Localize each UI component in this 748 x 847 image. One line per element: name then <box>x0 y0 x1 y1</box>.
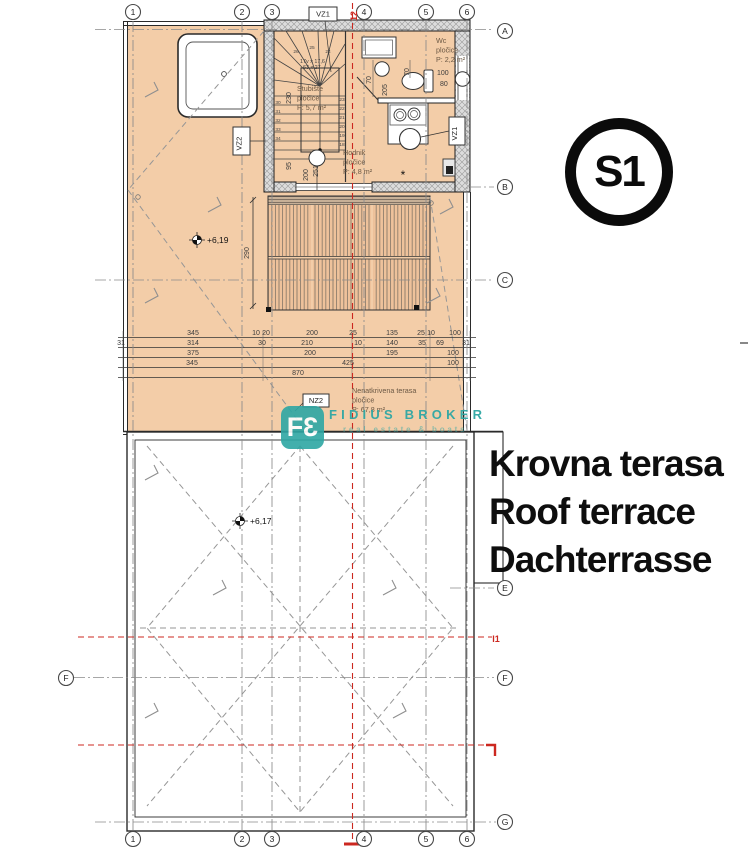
stair-step: 26 <box>293 49 299 55</box>
label: F <box>63 673 68 683</box>
dimension-label: 80 <box>440 81 448 88</box>
logo-letter-3: 3 <box>303 412 318 443</box>
section-badge: S1 <box>565 118 673 226</box>
floor-plan-page: { "drawing": { "badge": "S1", "title": {… <box>0 0 748 847</box>
dimension-label: 140 <box>386 340 398 347</box>
dimension-label: 135 <box>386 330 398 337</box>
stair-step: 32 <box>275 118 281 124</box>
title-en: Roof terrace <box>489 488 723 536</box>
toilet-tank <box>424 70 433 92</box>
grid-marker: A <box>498 24 513 39</box>
deck-post <box>414 305 419 310</box>
label: 5 <box>424 7 429 17</box>
dimension-label: 10 <box>427 330 435 337</box>
dimension-label: 200 <box>306 330 318 337</box>
room-name: Stubište <box>297 84 323 93</box>
deck-post <box>266 307 271 312</box>
room-material: pločice <box>297 94 319 103</box>
tag-label: VZ1 <box>316 10 330 19</box>
label: B <box>502 182 508 192</box>
label: 5 <box>424 834 429 844</box>
dimension-label: 345 <box>187 330 199 337</box>
stair-step: 30 <box>275 100 281 106</box>
broker-name: FIDIUS BROKER <box>329 407 486 422</box>
dimension-label: 35 <box>418 340 426 347</box>
grid-marker: 3 <box>265 5 280 20</box>
dimension-label: 25 <box>349 330 357 337</box>
dimension-label: 314 <box>187 340 199 347</box>
label: F <box>502 673 507 683</box>
title-hr: Krovna terasa <box>489 440 723 488</box>
dimension-label: 70 <box>404 68 411 76</box>
dimension-label: 195 <box>386 350 398 357</box>
tag-vz1: VZ1 <box>309 7 337 21</box>
dimension-label: 100 <box>447 360 459 367</box>
fixture-circle <box>375 62 389 76</box>
label: E <box>502 583 508 593</box>
dimension-label: 345 <box>186 360 198 367</box>
dimension-label: 100 <box>447 350 459 357</box>
label: C <box>502 275 508 285</box>
broker-tagline: real estate & boats <box>343 425 467 434</box>
boiler <box>400 129 421 150</box>
dimension-label: 425 <box>342 360 354 367</box>
tag-vz2: VZ2 <box>233 127 250 155</box>
stair-step: 23 <box>339 97 345 103</box>
stair-step: 20 <box>339 124 345 130</box>
logo-letter-f: F <box>287 412 304 443</box>
stair-step: 34 <box>275 136 281 142</box>
grid-marker: 6 <box>460 832 475 847</box>
grid-marker: F <box>59 671 74 686</box>
label: 4 <box>362 834 367 844</box>
tag-label: VZ1 <box>450 127 459 141</box>
tag-vz1: VZ1 <box>449 117 465 145</box>
room-area: P: 4,8 m² <box>343 167 373 176</box>
section-label: I1 <box>492 634 500 644</box>
dimension-label: 200 <box>303 169 310 181</box>
room-name: Hodnik <box>343 148 366 157</box>
pergola-deck <box>266 196 430 312</box>
grid-marker: 1 <box>126 5 141 20</box>
dimension-label: 69 <box>436 340 444 347</box>
level-value: +6,19 <box>207 235 229 245</box>
dimension-label: 25 <box>417 330 425 337</box>
room-name: Wc <box>436 36 447 45</box>
label: 6 <box>465 7 470 17</box>
label: 2 <box>240 7 245 17</box>
label: 3 <box>270 834 275 844</box>
grid-marker: B <box>498 180 513 195</box>
label: 3 <box>270 7 275 17</box>
drain-symbol <box>309 150 325 166</box>
label: A <box>502 26 508 36</box>
dimension-label: 95 <box>286 162 293 170</box>
section-label: 12 <box>349 11 359 21</box>
dimension-label: 10 <box>354 340 362 347</box>
tag-label: VZ2 <box>235 137 244 151</box>
room-material: pločice <box>343 158 365 167</box>
label: G <box>502 817 509 827</box>
room-name: Nenatkrivena terasa <box>352 386 416 395</box>
stair-step: 25 <box>309 45 315 51</box>
dimension-label: 70 <box>366 76 373 84</box>
dimension-label: 31 <box>117 340 125 347</box>
dimension-label: 205 <box>382 84 389 96</box>
dimension-label: 100 <box>449 330 461 337</box>
tag-label: NZ2 <box>309 396 323 405</box>
stair-step: 33 <box>275 127 281 133</box>
grid-marker: 5 <box>419 5 434 20</box>
stair-note: 63 x 27 <box>303 65 321 71</box>
label: 1 <box>131 834 136 844</box>
dimension-label: 30 <box>258 340 266 347</box>
stair-step: 18 <box>339 142 345 148</box>
dimension-label: 200 <box>304 350 316 357</box>
room-material: pločice <box>352 396 374 405</box>
room-area: P: 2,2 m² <box>436 55 466 64</box>
grid-marker: 2 <box>235 832 250 847</box>
dimension-label: 31 <box>462 340 470 347</box>
label: 4 <box>362 7 367 17</box>
broker-logo: F3 <box>281 406 324 449</box>
round-window-symbol <box>455 72 469 86</box>
stair-step: 19 <box>339 133 345 139</box>
grid-marker: 3 <box>265 832 280 847</box>
stair-step: 31 <box>275 109 281 115</box>
dimension-label: 870 <box>292 370 304 377</box>
room-area: P: 5,7 m² <box>297 103 327 112</box>
dimension-label: 20 <box>262 330 270 337</box>
room-material: pločice <box>436 46 458 55</box>
title-block: Krovna terasa Roof terrace Dachterrasse <box>489 440 723 584</box>
stair-step: 21 <box>339 115 345 121</box>
grid-marker: C <box>498 273 513 288</box>
dimension-label: 10 <box>252 330 260 337</box>
label: 1 <box>131 7 136 17</box>
dimension-label: 100 <box>437 70 449 77</box>
dimension-label: 230 <box>286 92 293 104</box>
skylight <box>178 34 257 117</box>
grid-marker: 5 <box>419 832 434 847</box>
level-value: +6,17 <box>250 516 272 526</box>
dimension-label: 251 <box>313 165 320 177</box>
grid-marker: F <box>498 671 513 686</box>
grid-marker: G <box>498 815 513 830</box>
title-de: Dachterrasse <box>489 536 723 584</box>
label: 6 <box>465 834 470 844</box>
note: * <box>401 168 406 182</box>
dimension-label: 290 <box>244 247 251 259</box>
dimension-label: 375 <box>187 350 199 357</box>
dimension-label: 210 <box>301 340 313 347</box>
grid-marker: 2 <box>235 5 250 20</box>
stair-step: 22 <box>339 106 345 112</box>
grid-marker: 4 <box>357 832 372 847</box>
grid-marker: 1 <box>126 832 141 847</box>
label: 2 <box>240 834 245 844</box>
grid-marker: 6 <box>460 5 475 20</box>
